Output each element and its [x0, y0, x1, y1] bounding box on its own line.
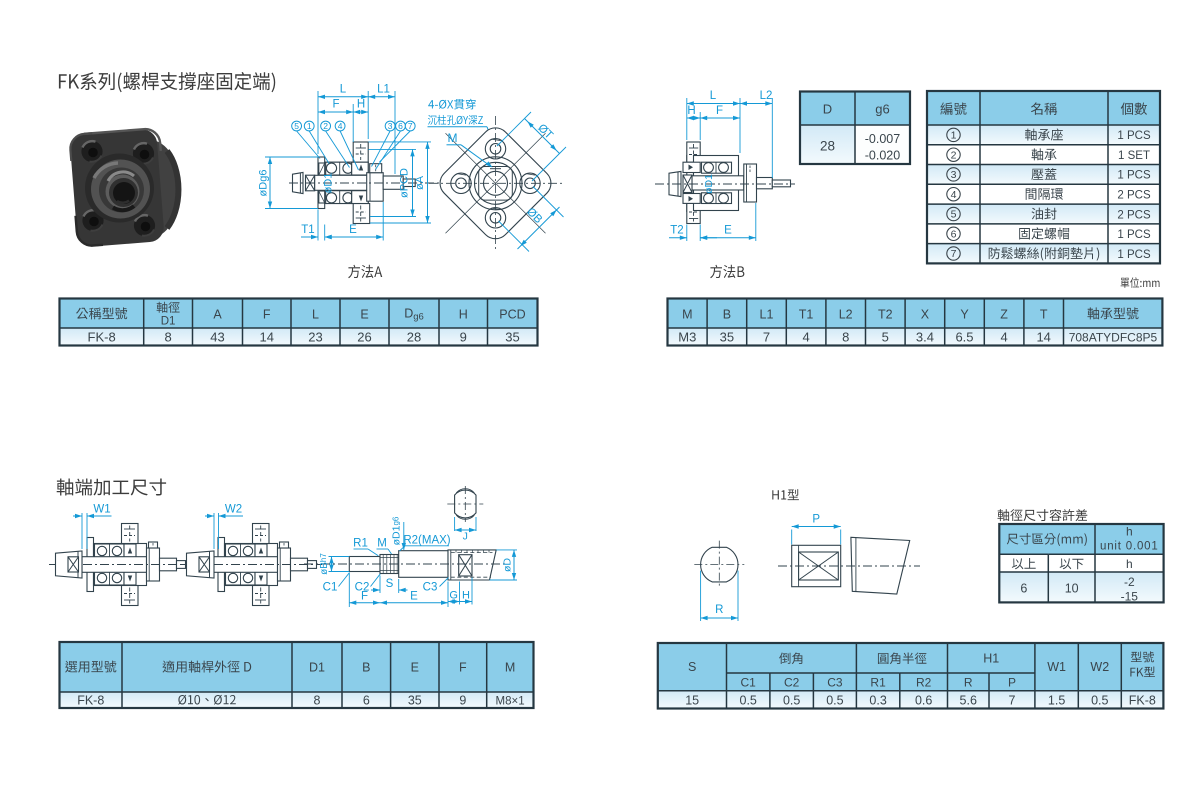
- svg-text:øD: øD: [502, 558, 514, 572]
- svg-text:708ATYDFC8P5: 708ATYDFC8P5: [1069, 330, 1158, 344]
- svg-text:6: 6: [951, 228, 957, 240]
- svg-text:W2: W2: [1090, 660, 1109, 674]
- svg-text:R2: R2: [916, 676, 932, 690]
- svg-text:4: 4: [951, 189, 957, 201]
- svg-text:C2: C2: [784, 676, 800, 690]
- svg-text:R: R: [715, 604, 723, 616]
- svg-text:4: 4: [1000, 330, 1007, 345]
- svg-text:øD1: øD1: [703, 174, 715, 194]
- svg-text:15: 15: [685, 694, 699, 708]
- svg-text:7: 7: [951, 248, 957, 260]
- svg-text:35: 35: [408, 693, 422, 707]
- svg-text:C3: C3: [423, 582, 438, 594]
- svg-text:Y: Y: [960, 307, 969, 321]
- svg-text:R1: R1: [870, 676, 886, 690]
- svg-text:unit 0.001: unit 0.001: [1100, 541, 1159, 553]
- svg-text:-0.007: -0.007: [865, 132, 900, 146]
- svg-text:B: B: [362, 661, 370, 675]
- svg-text:F: F: [332, 99, 339, 111]
- svg-text:M3: M3: [678, 330, 696, 345]
- svg-text:L2: L2: [760, 90, 773, 102]
- svg-text:FK-8: FK-8: [1129, 694, 1156, 708]
- svg-text:Z: Z: [1000, 307, 1008, 321]
- svg-text:0.6: 0.6: [915, 694, 932, 708]
- svg-text:3.4: 3.4: [916, 330, 934, 345]
- svg-text:3: 3: [951, 169, 957, 181]
- svg-text:M: M: [377, 538, 387, 550]
- svg-text:C1: C1: [323, 582, 338, 594]
- svg-text:h: h: [1126, 525, 1133, 539]
- svg-text:23: 23: [308, 330, 322, 345]
- svg-text:7: 7: [1008, 694, 1015, 708]
- svg-text:P: P: [812, 514, 820, 526]
- svg-text:1: 1: [951, 130, 957, 142]
- svg-text:0.5: 0.5: [1091, 694, 1108, 708]
- svg-text:7: 7: [408, 121, 413, 131]
- svg-text:L1: L1: [760, 307, 774, 321]
- svg-text:1: 1: [307, 121, 312, 131]
- svg-text:F: F: [459, 661, 467, 675]
- svg-text:F: F: [716, 105, 723, 117]
- svg-text:L: L: [340, 84, 347, 96]
- svg-text:6: 6: [1020, 582, 1027, 596]
- svg-text:C3: C3: [827, 676, 843, 690]
- svg-text:5: 5: [951, 209, 957, 221]
- svg-text:øDg6: øDg6: [258, 170, 270, 197]
- svg-text:43: 43: [210, 330, 224, 345]
- svg-text:H: H: [459, 307, 468, 321]
- svg-text:H: H: [357, 99, 365, 111]
- svg-text:M8×1: M8×1: [496, 695, 525, 707]
- svg-text:D: D: [823, 101, 832, 116]
- svg-text:6: 6: [398, 121, 403, 131]
- svg-text:W2: W2: [225, 504, 242, 516]
- svg-text:E: E: [724, 225, 732, 237]
- svg-text:1 PCS: 1 PCS: [1117, 130, 1151, 142]
- svg-text:X: X: [921, 307, 930, 321]
- svg-text:H1: H1: [983, 652, 999, 666]
- svg-text:28: 28: [820, 139, 835, 154]
- svg-text:W1: W1: [93, 504, 110, 516]
- svg-text:T: T: [1040, 307, 1048, 321]
- svg-text:-0.020: -0.020: [865, 149, 900, 163]
- svg-text:M: M: [505, 661, 515, 675]
- svg-text:4: 4: [338, 121, 343, 131]
- svg-text:H: H: [687, 105, 695, 117]
- svg-text:0.5: 0.5: [740, 694, 757, 708]
- svg-text:g6: g6: [875, 101, 889, 116]
- svg-text:øA: øA: [414, 175, 426, 190]
- svg-text:14: 14: [260, 330, 274, 345]
- svg-text:D1: D1: [161, 316, 176, 328]
- svg-text:E: E: [411, 661, 419, 675]
- svg-text:1 PCS: 1 PCS: [1117, 170, 1151, 182]
- svg-text:J: J: [463, 531, 468, 543]
- svg-text:0.5: 0.5: [826, 694, 843, 708]
- svg-text:5.6: 5.6: [960, 694, 977, 708]
- svg-text:14: 14: [1036, 330, 1050, 345]
- svg-text:R2(MAX): R2(MAX): [403, 535, 450, 547]
- svg-text:F: F: [263, 307, 271, 321]
- svg-text:35: 35: [720, 330, 734, 345]
- svg-text:0.5: 0.5: [783, 694, 800, 708]
- svg-text:-2: -2: [1124, 575, 1135, 589]
- svg-text:4: 4: [802, 330, 809, 345]
- svg-text:T1: T1: [799, 307, 814, 321]
- svg-text:øD1: øD1: [323, 173, 335, 194]
- svg-text:h: h: [1126, 557, 1133, 571]
- svg-text:M: M: [682, 307, 692, 321]
- svg-text:8: 8: [164, 330, 171, 345]
- svg-text:L1: L1: [377, 84, 390, 96]
- svg-text:R: R: [964, 676, 973, 690]
- svg-text:2: 2: [323, 121, 328, 131]
- svg-text:L: L: [312, 307, 319, 321]
- svg-text:2 PCS: 2 PCS: [1117, 209, 1151, 221]
- svg-text:1.5: 1.5: [1048, 694, 1065, 708]
- svg-text:S: S: [386, 578, 394, 590]
- svg-text:F: F: [361, 591, 368, 603]
- svg-text:T2: T2: [878, 307, 893, 321]
- svg-text:6.5: 6.5: [955, 330, 973, 345]
- svg-text:7: 7: [763, 330, 770, 345]
- svg-text:FK-8: FK-8: [77, 693, 104, 707]
- svg-text:øPCD: øPCD: [399, 168, 411, 198]
- svg-text:9: 9: [460, 330, 467, 345]
- svg-text:A: A: [213, 307, 222, 321]
- svg-text:E: E: [349, 224, 357, 236]
- svg-text:1 PCS: 1 PCS: [1117, 229, 1151, 241]
- svg-text:5: 5: [294, 121, 299, 131]
- svg-text:2 PCS: 2 PCS: [1117, 190, 1151, 202]
- svg-text:T2: T2: [670, 225, 683, 237]
- svg-text:L: L: [710, 90, 717, 102]
- svg-text:PCD: PCD: [499, 307, 525, 321]
- svg-text:3: 3: [388, 121, 393, 131]
- svg-text:C1: C1: [741, 676, 757, 690]
- svg-text:6: 6: [363, 693, 370, 707]
- svg-text:9: 9: [459, 693, 466, 707]
- svg-text:S: S: [688, 660, 696, 674]
- svg-text:E: E: [360, 307, 368, 321]
- svg-text:FK-8: FK-8: [88, 330, 116, 345]
- svg-text:G: G: [449, 590, 458, 602]
- svg-text:T1: T1: [301, 224, 314, 236]
- svg-text:P: P: [1008, 676, 1016, 690]
- svg-text:E: E: [410, 591, 418, 603]
- svg-text:26: 26: [357, 330, 371, 345]
- svg-text:1 PCS: 1 PCS: [1117, 249, 1151, 261]
- svg-text:2: 2: [951, 149, 957, 161]
- svg-text:-15: -15: [1121, 590, 1139, 604]
- svg-text:10: 10: [1065, 582, 1079, 596]
- svg-text:R1: R1: [353, 538, 368, 550]
- svg-text:H: H: [462, 590, 470, 602]
- svg-text:M: M: [448, 131, 458, 145]
- svg-text:8: 8: [314, 693, 321, 707]
- svg-text:L2: L2: [839, 307, 853, 321]
- svg-text:1 SET: 1 SET: [1118, 150, 1150, 162]
- svg-text:8: 8: [842, 330, 849, 345]
- svg-text:28: 28: [407, 330, 421, 345]
- svg-text:0.3: 0.3: [869, 694, 886, 708]
- svg-text:B: B: [723, 307, 731, 321]
- svg-text:W1: W1: [1047, 660, 1066, 674]
- svg-text:35: 35: [505, 330, 519, 345]
- svg-text:5: 5: [882, 330, 889, 345]
- svg-text:D1: D1: [309, 661, 325, 675]
